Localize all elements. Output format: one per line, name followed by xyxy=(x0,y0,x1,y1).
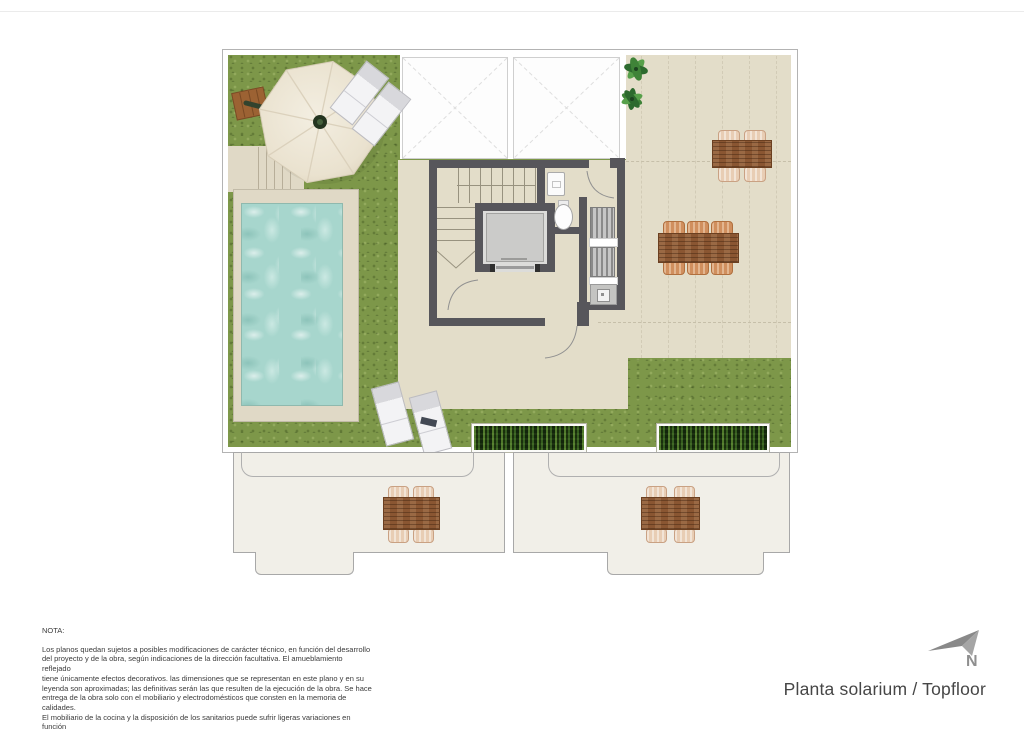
note-line: entrega de la obra solo con el mobiliari… xyxy=(42,693,372,712)
dining-table-small xyxy=(383,497,440,530)
note-line: leyenda son aproximadas; las definitivas… xyxy=(42,684,372,694)
planter xyxy=(657,424,769,452)
chair xyxy=(646,528,667,543)
note-line: El mobiliario de la cocina y la disposic… xyxy=(42,713,372,732)
note-line: del proyecto y de la obra, según indicac… xyxy=(42,654,372,673)
towel xyxy=(420,417,437,427)
compass-label: N xyxy=(966,653,978,671)
terrace-notch xyxy=(607,552,764,575)
note-block: NOTA: Los planos quedan sujetos a posibl… xyxy=(42,626,372,732)
chair xyxy=(718,166,740,182)
terrace-notch xyxy=(255,552,354,575)
floor-plan xyxy=(222,49,798,575)
dining-table-large xyxy=(658,233,739,263)
note-line: tiene únicamente efectos decorativos. la… xyxy=(42,674,372,684)
terrace-step-outline xyxy=(241,452,474,477)
note-title: NOTA: xyxy=(42,626,372,636)
chair xyxy=(674,528,695,543)
chair xyxy=(744,166,766,182)
terrace-step-outline xyxy=(548,452,780,477)
planter xyxy=(472,424,586,452)
chair xyxy=(413,528,434,543)
page-title: Planta solarium / Topfloor xyxy=(784,679,986,700)
plant-icon xyxy=(618,53,672,123)
compass: N xyxy=(928,629,998,677)
dining-table-small xyxy=(712,140,772,168)
page-top-rule xyxy=(0,11,1024,12)
chair xyxy=(388,528,409,543)
note-line: Los planos quedan sujetos a posibles mod… xyxy=(42,645,372,655)
dining-table-small xyxy=(641,497,700,530)
